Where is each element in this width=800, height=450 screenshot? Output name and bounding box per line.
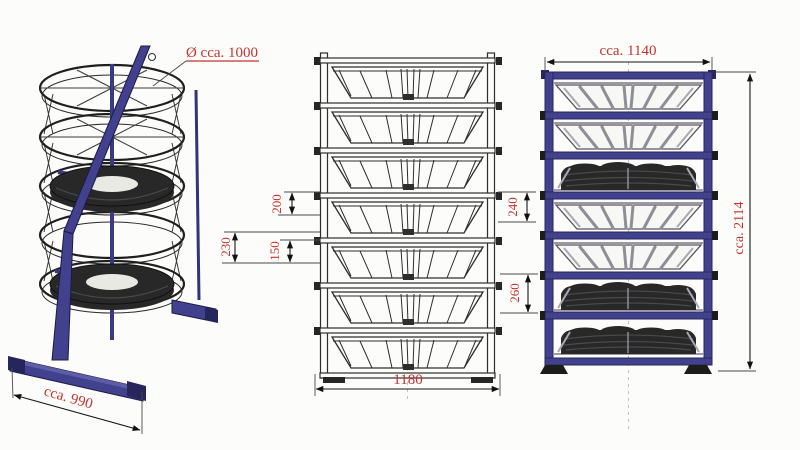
tire-shelf (554, 162, 703, 190)
rack-level (314, 237, 502, 280)
rear-pole (196, 90, 199, 300)
width-dimension-label: cca. 1140 (600, 43, 657, 59)
right-top-label: 240 (505, 197, 520, 217)
empty-shelf (554, 83, 703, 109)
rack-foot (323, 377, 345, 383)
lifting-eye-icon (149, 54, 156, 61)
rack-level (314, 147, 502, 190)
left-pitch-label: 230 (220, 237, 233, 257)
tire-stack-upper (50, 166, 174, 212)
rack-level (314, 282, 502, 325)
tire-shelf (554, 326, 703, 354)
empty-shelf (554, 203, 703, 229)
rear-foot (172, 300, 218, 323)
front-color-figure: cca. 1140 cca. 2114 (540, 0, 800, 450)
rack-foot (471, 377, 493, 383)
technical-drawing-canvas: Ø cca. 1000 cca. 990 (0, 0, 800, 450)
shelf-beam (540, 271, 718, 280)
left-top-gap-label: 200 (269, 194, 284, 214)
empty-shelf (554, 123, 703, 149)
left-clear-dimension: 150 (267, 240, 320, 262)
height-dimension: cca. 2114 (715, 72, 756, 371)
front-feet (540, 365, 712, 374)
shelf-beam (540, 191, 718, 200)
shelf-beam (540, 111, 718, 120)
shelf-beam (540, 151, 718, 160)
right-top-dimension: 240 (498, 192, 536, 222)
shelf-beam (540, 311, 718, 320)
shelf-beam (540, 231, 718, 240)
empty-shelf (554, 243, 703, 269)
left-clear-label: 150 (267, 241, 282, 261)
rack-level (314, 57, 502, 100)
left-top-gap-dimension: 200 (269, 192, 320, 215)
right-bottom-label: 260 (507, 283, 522, 303)
sketch-shelf-levels (314, 57, 502, 383)
width-dimension: cca. 1140 (545, 43, 712, 71)
rack-level (314, 102, 502, 145)
right-bottom-dimension: 260 (500, 274, 538, 313)
tire-shelf (554, 282, 703, 310)
bottom-width-label: 1180 (393, 372, 422, 388)
rack-level (314, 327, 502, 370)
rack-level (314, 192, 502, 235)
front-sketch-figure: 200 230 150 240 260 (220, 0, 540, 450)
height-dimension-label: cca. 2114 (732, 201, 747, 254)
